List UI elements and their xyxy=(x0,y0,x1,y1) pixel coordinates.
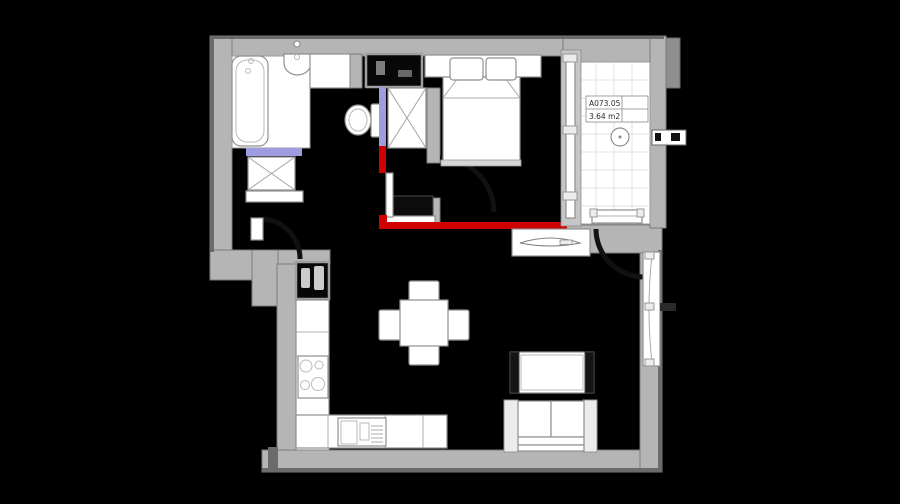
pillow-left xyxy=(450,58,483,80)
dishwasher xyxy=(338,418,386,446)
window-exterior-tick xyxy=(660,303,676,311)
bed-footboard xyxy=(441,160,521,166)
hall-cabinet xyxy=(310,54,350,88)
coffee-table-cap-right xyxy=(585,352,594,393)
bathroom-shelf xyxy=(246,191,303,202)
left-wall-edge xyxy=(210,36,214,252)
dining-table xyxy=(400,300,448,346)
floorplan-drawing: A073.05 3.64 m2 xyxy=(0,0,900,504)
bedroom xyxy=(425,55,541,212)
sofa-armrest-right xyxy=(583,400,597,452)
sill-post-right xyxy=(637,209,644,217)
hall-cabinet-low xyxy=(387,196,433,216)
sofa-front-edge xyxy=(518,437,584,445)
room-code-label: A073.05 xyxy=(589,99,621,108)
sill-post-left xyxy=(590,209,597,217)
toilet xyxy=(345,104,382,137)
bottom-wall-edge xyxy=(262,468,662,472)
sofa-cushion-right xyxy=(551,401,584,437)
coffee-table-cap-left xyxy=(510,352,519,393)
wc-wall-highlight-red xyxy=(379,146,386,173)
sink-tap-icon xyxy=(294,41,300,47)
glazing-post-top xyxy=(563,54,577,62)
fridge-detail2 xyxy=(314,266,324,290)
top-wall-edge xyxy=(210,36,664,39)
wc-wall-highlight-blue xyxy=(379,87,386,146)
bed xyxy=(441,58,521,166)
sofa-cushion-left xyxy=(518,401,551,437)
coffee-table xyxy=(510,352,594,393)
kitchen-left-wall xyxy=(277,264,296,456)
chair-right xyxy=(447,310,469,340)
tv-sideboard xyxy=(512,229,590,256)
sink xyxy=(284,54,311,75)
wc-room xyxy=(310,54,426,173)
window-post-bottom xyxy=(645,359,654,366)
window-post-mid xyxy=(645,303,654,310)
sofa-armrest-left xyxy=(504,400,518,452)
tv-remote xyxy=(560,240,572,245)
entry-door-leaf xyxy=(251,218,263,240)
shower-cabin xyxy=(388,88,426,148)
right-window xyxy=(643,252,676,366)
entry-corner-wall xyxy=(210,250,252,280)
sofa xyxy=(504,400,597,452)
pillow-right xyxy=(486,58,516,80)
fridge xyxy=(296,262,329,299)
dark-cabinet-detail xyxy=(376,61,385,75)
drain-pipe-fixture xyxy=(652,130,686,145)
dining-set xyxy=(379,281,469,365)
stove xyxy=(298,356,328,398)
bedroom-left-wall xyxy=(427,88,440,163)
window-post-top xyxy=(645,252,654,259)
room-area-label: 3.64 m2 xyxy=(589,112,620,121)
hall-living-door-leaf xyxy=(386,173,393,217)
bed-body xyxy=(443,77,520,163)
floor-drain-center xyxy=(619,136,622,139)
dark-cabinet-detail2 xyxy=(398,70,412,77)
sofa-front-skirt xyxy=(518,445,584,451)
glazing-post-mid xyxy=(563,126,577,134)
washing-machine xyxy=(248,157,295,190)
bathroom-threshold-highlight xyxy=(246,148,302,156)
entry-step-wall xyxy=(252,250,278,306)
dark-cabinet xyxy=(366,54,422,87)
bottom-left-corner-edge xyxy=(268,447,278,472)
wall-highlight-red-horizontal xyxy=(383,222,567,229)
floorplan-canvas: A073.05 3.64 m2 xyxy=(0,0,900,504)
kitchen xyxy=(296,262,469,450)
glazing-post-bottom xyxy=(563,192,577,200)
balcony-label-table: A073.05 3.64 m2 xyxy=(586,96,648,122)
balcony-door-sill xyxy=(590,209,644,223)
fridge-detail xyxy=(301,268,310,288)
chair-left xyxy=(379,310,401,340)
